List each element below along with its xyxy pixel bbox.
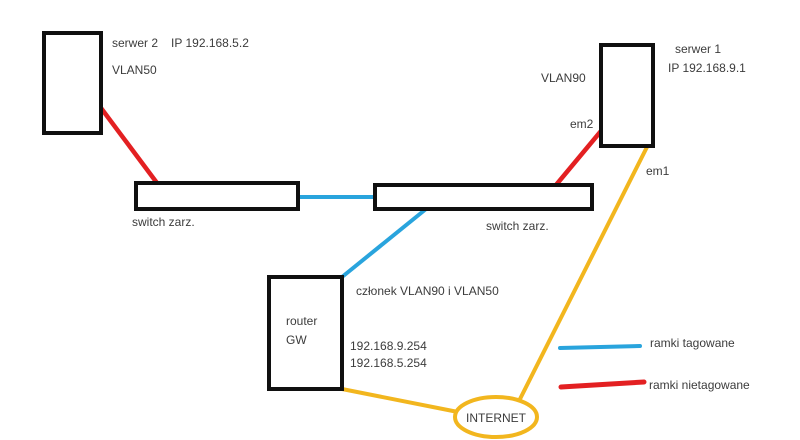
network-diagram: serwer 2 IP 192.168.5.2 VLAN50 serwer 1 … (0, 0, 800, 440)
router-role: GW (286, 333, 307, 348)
legend-tagged-label: ramki tagowane (650, 336, 735, 351)
node-switch-left (134, 181, 300, 211)
serwer1-ip: IP 192.168.9.1 (668, 61, 746, 76)
switch-left-label: switch zarz. (132, 215, 195, 230)
link-serwer1-em2-to-switch-right-untagged (556, 131, 601, 185)
serwer1-name: serwer 1 (675, 42, 721, 57)
router-trunk-note: członek VLAN90 i VLAN50 (356, 284, 499, 299)
serwer1-port-em1-label: em1 (646, 164, 669, 179)
serwer2-vlan-label: VLAN50 (112, 63, 157, 78)
serwer2-caption: serwer 2 IP 192.168.5.2 (112, 36, 249, 51)
router-gateway-vlan90: 192.168.9.254 (350, 339, 427, 354)
serwer1-vlan-label: VLAN90 (541, 71, 586, 86)
link-router-to-internet (342, 389, 458, 412)
node-serwer2 (42, 31, 103, 135)
serwer2-name: serwer 2 (112, 36, 158, 51)
internet-label: INTERNET (455, 411, 537, 426)
legend-tagged-swatch (560, 346, 640, 348)
legend-untagged-swatch (561, 382, 644, 387)
link-serwer2-to-switch-left-untagged (101, 108, 157, 183)
switch-right-label: switch zarz. (486, 219, 549, 234)
link-switch-right-to-router-tagged (342, 209, 426, 277)
node-serwer1 (599, 43, 655, 148)
serwer2-ip: IP 192.168.5.2 (171, 36, 249, 51)
router-gateway-vlan50: 192.168.5.254 (350, 356, 427, 371)
router-name: router (286, 314, 317, 329)
node-switch-right (373, 183, 594, 211)
legend-untagged-label: ramki nietagowane (649, 378, 750, 393)
serwer1-port-em2-label: em2 (570, 117, 593, 132)
